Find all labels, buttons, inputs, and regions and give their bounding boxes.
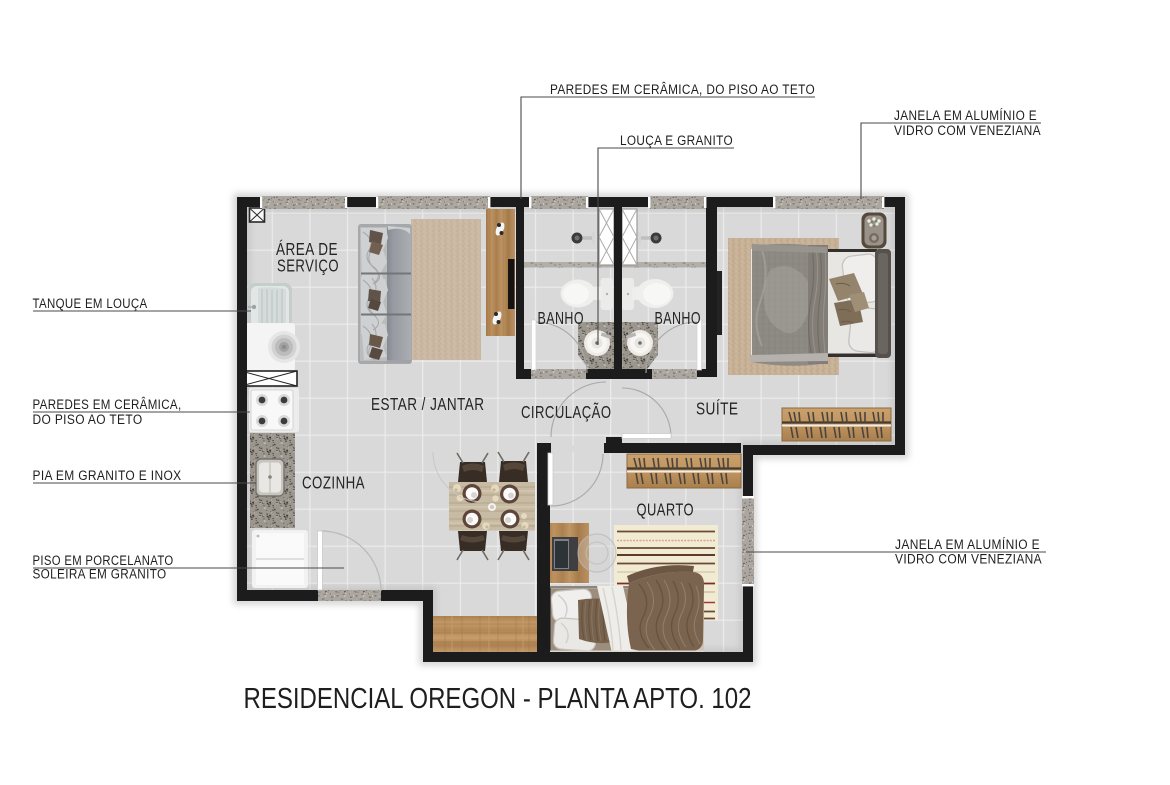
svg-text:VIDRO COM VENEZIANA: VIDRO COM VENEZIANA [895, 552, 1042, 567]
svg-text:DO PISO AO TETO: DO PISO AO TETO [33, 412, 143, 427]
svg-text:SOLEIRA EM GRANITO: SOLEIRA EM GRANITO [33, 567, 167, 582]
svg-text:PAREDES EM CERÂMICA,: PAREDES EM CERÂMICA, [33, 397, 182, 412]
svg-text:CIRCULAÇÃO: CIRCULAÇÃO [521, 401, 612, 422]
svg-text:JANELA EM ALUMÍNIO E: JANELA EM ALUMÍNIO E [895, 537, 1040, 552]
svg-text:PAREDES EM CERÂMICA, DO PISO A: PAREDES EM CERÂMICA, DO PISO AO TETO [550, 82, 815, 97]
svg-text:SUÍTE: SUÍTE [696, 399, 739, 419]
svg-text:RESIDENCIAL OREGON - PLANTA AP: RESIDENCIAL OREGON - PLANTA APTO. 102 [244, 683, 752, 715]
svg-text:ESTAR / JANTAR: ESTAR / JANTAR [371, 394, 485, 414]
svg-text:BANHO: BANHO [655, 308, 702, 328]
svg-text:QUARTO: QUARTO [637, 500, 695, 520]
svg-text:LOUÇA E GRANITO: LOUÇA E GRANITO [620, 133, 733, 148]
svg-text:VIDRO COM VENEZIANA: VIDRO COM VENEZIANA [894, 123, 1041, 138]
svg-text:SERVIÇO: SERVIÇO [277, 256, 339, 276]
svg-text:COZINHA: COZINHA [302, 473, 365, 493]
svg-text:TANQUE EM LOUÇA: TANQUE EM LOUÇA [33, 296, 148, 311]
svg-text:JANELA EM ALUMÍNIO E: JANELA EM ALUMÍNIO E [894, 108, 1037, 123]
svg-text:PIA EM GRANITO E INOX: PIA EM GRANITO E INOX [33, 468, 182, 483]
svg-text:BANHO: BANHO [538, 308, 585, 328]
